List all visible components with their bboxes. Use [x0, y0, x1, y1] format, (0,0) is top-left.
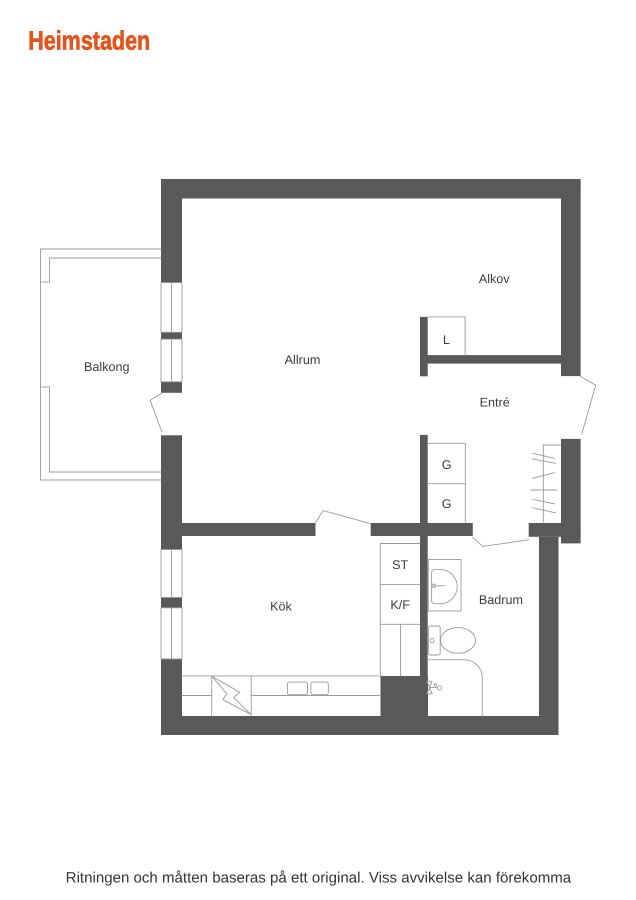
svg-text:Ritningen och måtten baseras p: Ritningen och måtten baseras på ett orig… [66, 870, 572, 887]
svg-text:Allrum: Allrum [285, 353, 321, 367]
svg-text:G: G [442, 458, 452, 472]
svg-text:Entré: Entré [480, 396, 510, 410]
svg-text:ST: ST [392, 558, 408, 572]
svg-text:L: L [443, 333, 450, 347]
svg-text:Alkov: Alkov [479, 272, 510, 286]
svg-text:Heimstaden: Heimstaden [28, 25, 150, 55]
svg-text:Badrum: Badrum [479, 593, 523, 607]
svg-text:Balkong: Balkong [84, 360, 130, 374]
svg-text:K/F: K/F [390, 598, 410, 612]
svg-text:Kök: Kök [270, 600, 292, 614]
svg-text:G: G [442, 497, 452, 511]
